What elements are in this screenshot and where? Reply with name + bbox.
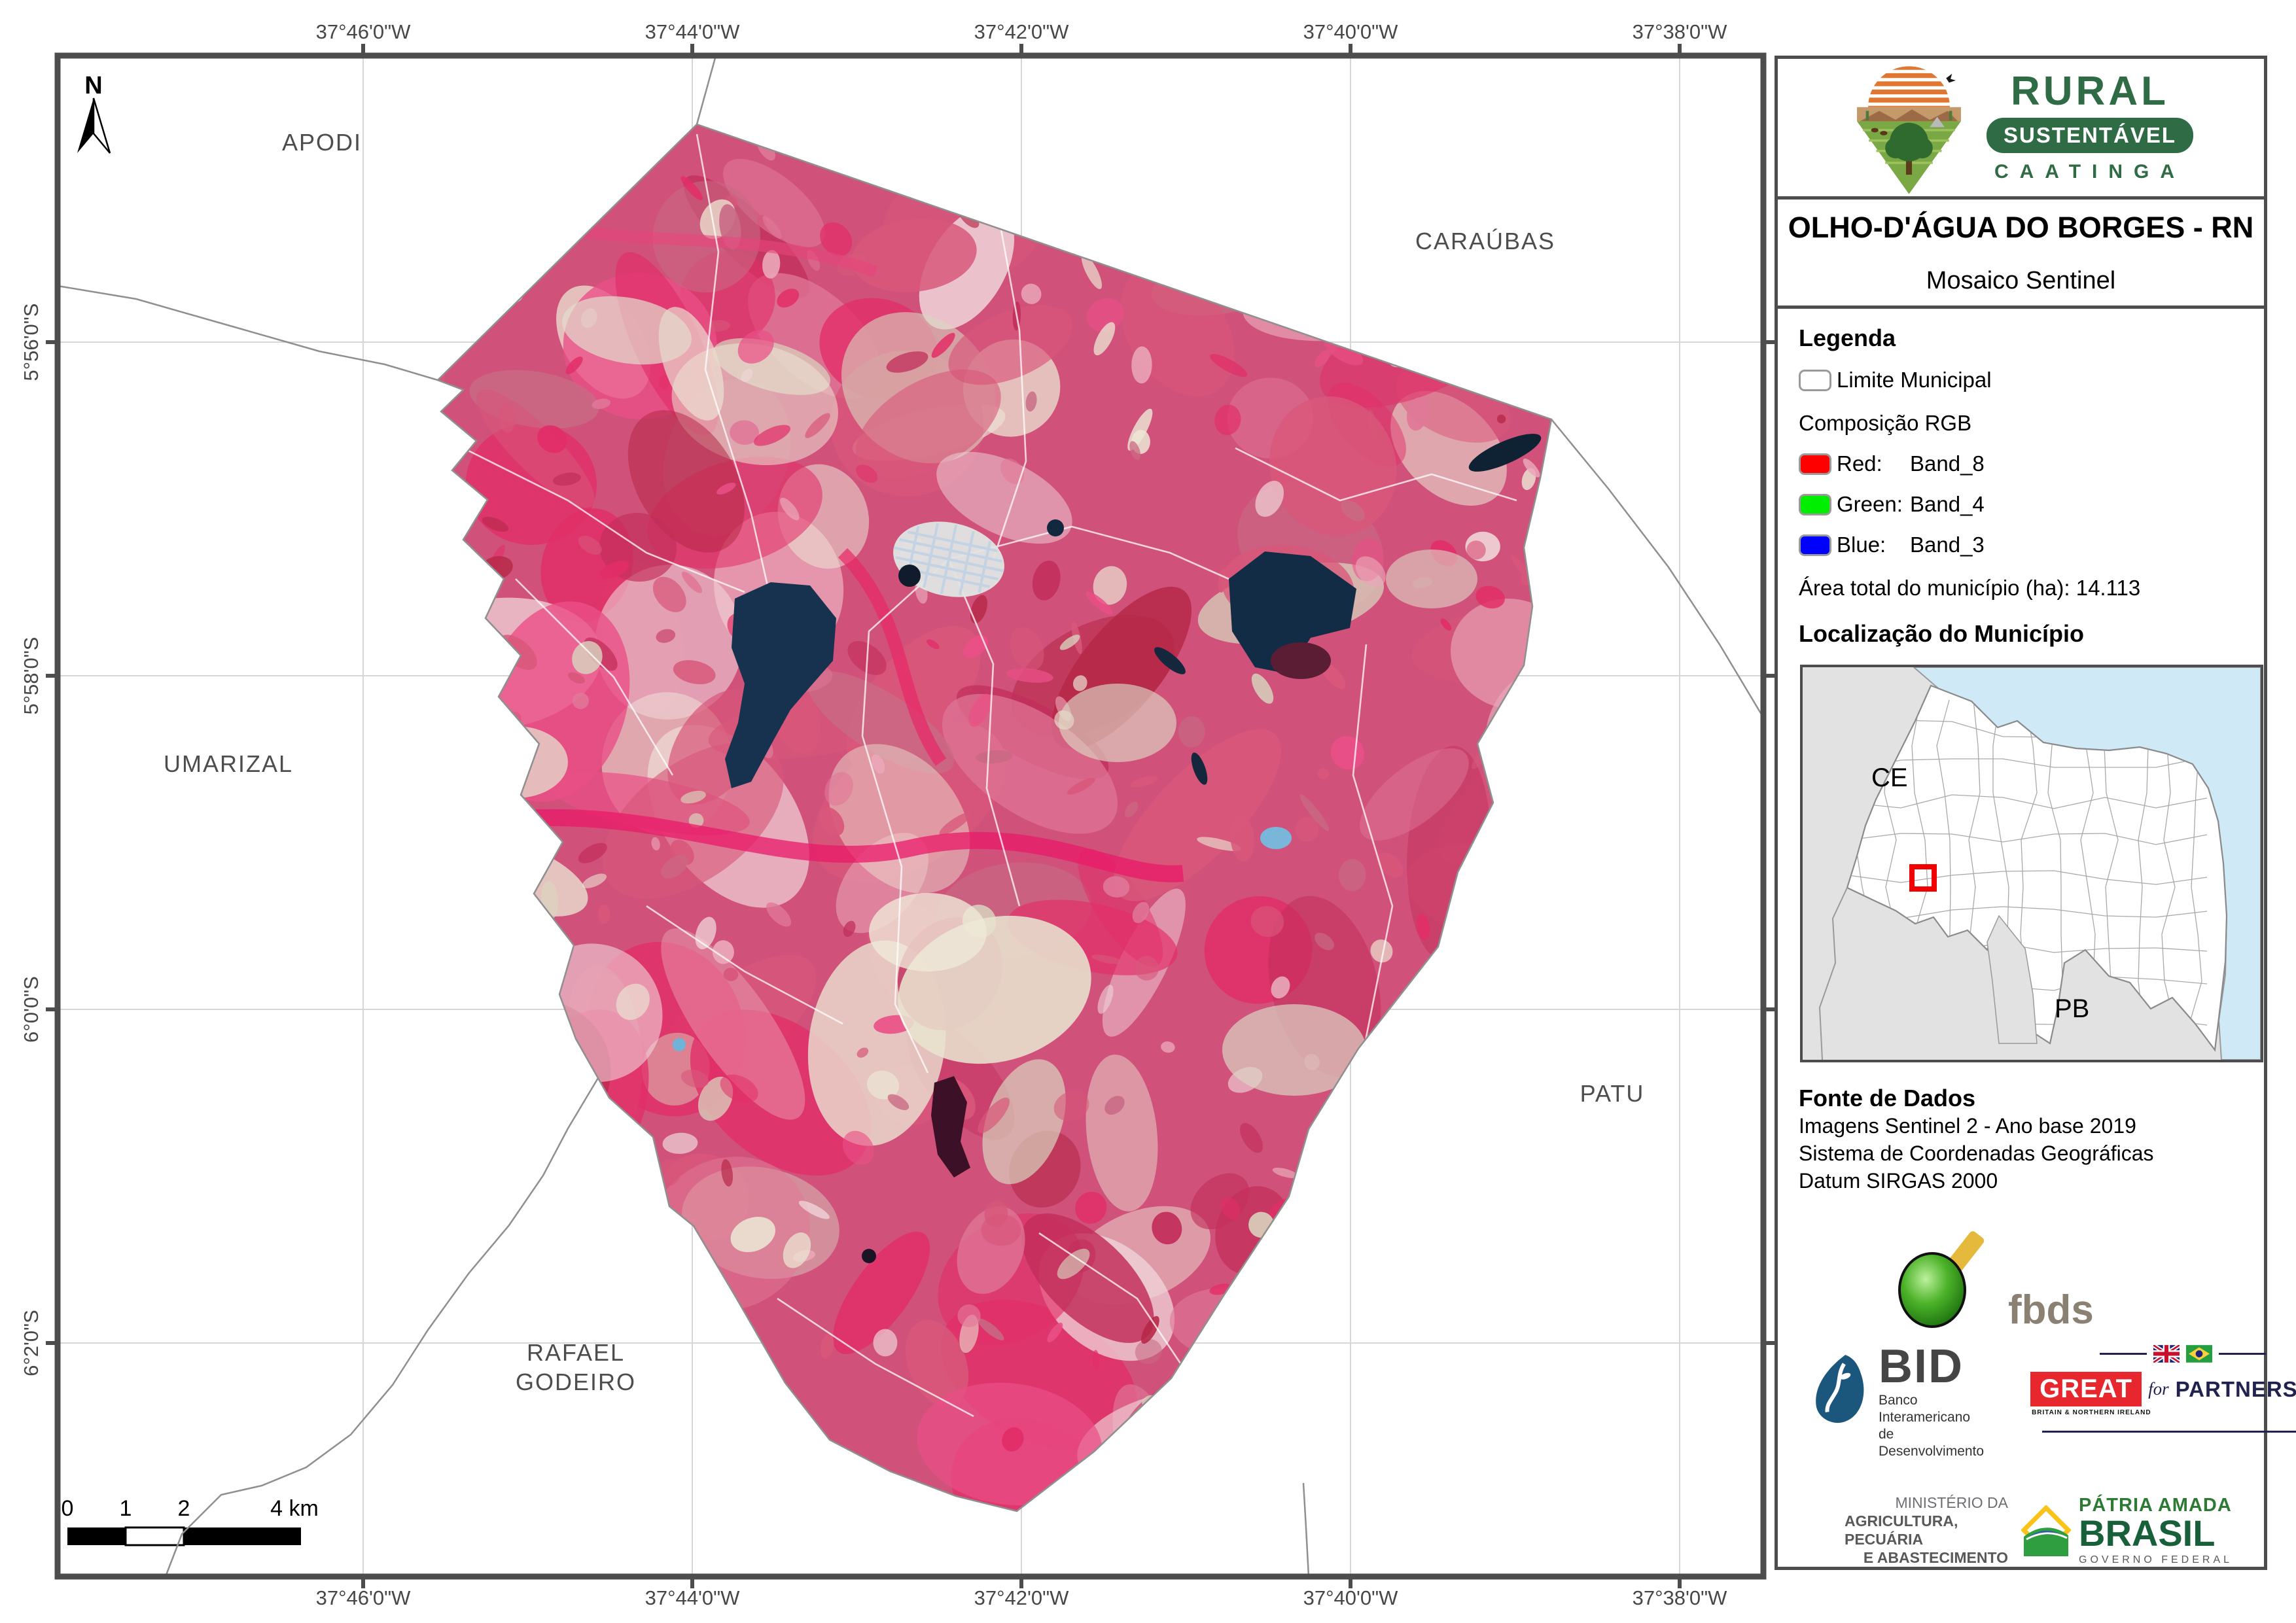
sat-blob	[1515, 364, 1542, 394]
scale-4km: 4 km	[270, 1496, 319, 1521]
fonte-heading: Fonte de Dados	[1799, 1085, 2264, 1112]
sat-blob	[412, 748, 518, 916]
sat-blob	[1468, 938, 1499, 967]
sat-blob	[486, 979, 508, 993]
flag-dash-right	[2219, 1353, 2266, 1355]
sat-blob	[524, 967, 537, 979]
sat-blob	[1462, 283, 1494, 305]
sat-blob	[486, 1002, 519, 1036]
sat-blob	[1434, 1367, 1474, 1392]
scale-2: 2	[178, 1496, 190, 1521]
great-subtitle: BRITAIN & NORTHERN IRELAND	[2032, 1409, 2151, 1416]
sat-blob	[1423, 1155, 1442, 1188]
sat-blob	[1502, 1384, 1527, 1419]
sat-blob	[1117, 185, 1154, 224]
legend-item-limite: Limite Municipal	[1799, 368, 2264, 393]
sat-blob	[1226, 1468, 1256, 1514]
bid-subtitle-1: Banco Interamericano	[1879, 1392, 1994, 1426]
sat-blob	[1396, 1070, 1421, 1093]
sat-blob	[1335, 1463, 1343, 1472]
sat-blob	[981, 1214, 1021, 1246]
sat-blob	[393, 918, 510, 1050]
sat-blob	[495, 1164, 507, 1197]
sat-blob	[1356, 1422, 1443, 1492]
lon-label-top: 37°46'0"W	[291, 20, 435, 44]
lon-label-top: 37°40'0"W	[1279, 20, 1422, 44]
pb-label: PB	[2055, 994, 2089, 1023]
sat-blob	[1522, 864, 1549, 891]
sat-blob	[1150, 168, 1195, 191]
sat-blob	[1311, 1193, 1335, 1223]
sat-blob	[1309, 1456, 1332, 1499]
fbds-wordmark: fbds	[2008, 1293, 2094, 1328]
uk-flag-icon	[2153, 1345, 2180, 1363]
page-title: OLHO-D'ÁGUA DO BORGES - RN	[1788, 211, 2254, 245]
lon-label-bottom: 37°42'0"W	[949, 1586, 1093, 1611]
sat-blob	[1108, 1467, 1156, 1501]
sat-blob	[1522, 988, 1562, 1024]
sat-blob	[419, 1219, 573, 1358]
sat-blob	[1402, 1045, 1520, 1129]
bid-wordmark: BID	[1879, 1345, 1994, 1388]
sat-blob	[463, 639, 491, 680]
brand-caatinga: CAATINGA	[1994, 161, 2185, 183]
brazil-flag-icon	[2186, 1345, 2212, 1363]
ministry-line-2: AGRICULTURA, PECUÁRIA	[1845, 1512, 2008, 1548]
sat-blob	[1199, 1321, 1409, 1443]
sat-blob	[1301, 264, 1330, 288]
sat-blob	[1512, 1275, 1540, 1310]
north-label: N	[84, 72, 102, 99]
sat-blob	[1199, 1499, 1237, 1532]
red-value: Band_8	[1910, 451, 1985, 476]
red-label: Red:	[1837, 451, 1910, 476]
lat-label-left: 5°58'0"S	[19, 604, 44, 748]
sat-blob	[1080, 1481, 1105, 1505]
sat-blob	[873, 1329, 897, 1357]
sat-blob	[567, 1210, 597, 1238]
sat-blob	[521, 1117, 564, 1166]
sat-blob	[1458, 1208, 1496, 1252]
sat-blob	[1455, 1042, 1485, 1076]
green-value: Band_4	[1910, 492, 1985, 517]
sat-blob	[419, 962, 468, 1011]
legend-item-blue: Blue: Band_3	[1799, 532, 2264, 557]
label-rafael-godeiro-2: GODEIRO	[516, 1369, 636, 1395]
fbds-logo-icon	[1898, 1217, 2003, 1328]
sat-blob	[1194, 10, 1445, 254]
sat-blob	[1004, 69, 1103, 202]
sat-blob	[1433, 1184, 1457, 1213]
sat-blob	[1320, 1161, 1357, 1196]
sat-blob	[1345, 1431, 1364, 1455]
sidebar-panel: RURAL SUSTENTÁVEL CAATINGA OLHO-D'ÁGUA D…	[1775, 56, 2267, 1570]
sat-blob	[503, 1147, 519, 1165]
government-logos-row: MINISTÉRIO DA AGRICULTURA, PECUÁRIA E AB…	[1845, 1494, 2264, 1567]
lat-label-left: 6°2'0"S	[19, 1271, 44, 1415]
sat-blob	[1120, 131, 1262, 295]
lat-label-left: 6°0'0"S	[19, 937, 44, 1081]
sat-blob	[493, 118, 519, 139]
sat-blob	[1269, 205, 1322, 259]
sat-blob	[1459, 1518, 1501, 1529]
sat-blob	[645, 102, 681, 140]
sat-blob	[1230, 1299, 1272, 1336]
legend-item-green: Green: Band_4	[1799, 492, 2264, 517]
sat-blob	[439, 839, 465, 850]
area-total: Área total do município (ha): 14.113	[1799, 576, 2264, 601]
sat-blob	[1312, 1181, 1486, 1339]
sat-blob	[514, 907, 537, 928]
green-swatch	[1799, 494, 1831, 515]
sat-blob	[1349, 213, 1381, 258]
sat-blob	[599, 1282, 611, 1304]
sat-blob	[1382, 85, 1608, 300]
lon-label-top: 37°42'0"W	[949, 20, 1093, 44]
sat-blob	[1462, 1130, 1485, 1161]
caatinga-logo-icon	[1848, 59, 1969, 196]
sat-blob	[1100, 156, 1140, 198]
north-arrow: N	[77, 72, 110, 153]
sat-blob	[1485, 1427, 1513, 1456]
ministry-text: MINISTÉRIO DA AGRICULTURA, PECUÁRIA E AB…	[1845, 1494, 2008, 1567]
locator-inset: CE PB	[1800, 665, 2263, 1062]
label-umarizal: UMARIZAL	[164, 750, 293, 777]
lon-label-bottom: 37°40'0"W	[1279, 1586, 1422, 1611]
sat-blob	[1111, 1425, 1178, 1620]
sat-blob	[1235, 188, 1277, 221]
sat-blob	[427, 247, 445, 262]
red-swatch	[1799, 453, 1831, 475]
sat-blob	[1295, 817, 1318, 842]
page-subtitle: Mosaico Sentinel	[1926, 267, 2115, 295]
sat-blob	[717, 1404, 741, 1432]
localizacao-heading: Localização do Município	[1799, 620, 2264, 648]
sat-blob	[1247, 1457, 1286, 1503]
flag-dash-left	[2100, 1353, 2147, 1355]
sat-blob	[1439, 1210, 1502, 1349]
great-partnership: PARTNERSHIP	[2176, 1377, 2296, 1402]
sat-blob	[1359, 1158, 1372, 1166]
sat-blob	[669, 1363, 700, 1391]
brazil-gov-flag-icon	[2021, 1505, 2071, 1556]
sat-blob	[1398, 1188, 1411, 1209]
lon-label-bottom: 37°46'0"W	[291, 1586, 435, 1611]
legend-heading: Legenda	[1799, 324, 2264, 352]
ce-label: CE	[1871, 763, 1908, 792]
blue-value: Band_3	[1910, 532, 1985, 557]
sat-blob	[997, 109, 1020, 135]
patria-amada-text: PÁTRIA AMADA BRASIL GOVERNO FEDERAL	[2079, 1495, 2233, 1566]
sat-blob	[544, 1158, 571, 1179]
sat-blob	[1222, 1257, 1394, 1442]
sat-blob	[1333, 253, 1371, 297]
sat-blob	[1327, 296, 1364, 317]
sat-blob	[416, 761, 436, 805]
bid-logo: BID Banco Interamericano de Desenvolvime…	[1810, 1345, 1994, 1460]
bid-logo-icon	[1810, 1345, 1869, 1437]
sat-blob	[1193, 1401, 1223, 1422]
sat-blob	[1510, 1465, 1543, 1488]
blue-swatch	[1799, 534, 1831, 556]
sat-blob	[516, 1422, 540, 1456]
sat-blob	[1133, 1427, 1159, 1459]
lon-label-bottom: 37°38'0"W	[1608, 1586, 1752, 1611]
sat-blob	[400, 656, 479, 820]
great-rule	[2042, 1431, 2296, 1433]
sat-blob	[506, 80, 568, 184]
sat-blob	[501, 832, 512, 880]
sat-blob	[1473, 1357, 1618, 1526]
great-for: for	[2148, 1379, 2169, 1399]
scale-bar: 0 1 2 4 km	[62, 1496, 319, 1545]
sat-blob	[1112, 196, 1146, 228]
label-patu: PATU	[1580, 1080, 1645, 1107]
program-logo-text: RURAL SUSTENTÁVEL CAATINGA	[1987, 72, 2193, 183]
locator-inset-map: CE PB	[1803, 667, 2261, 1060]
map-layout-page: 0 1 2 4 km	[0, 0, 2296, 1623]
label-caraubas: CARAÚBAS	[1415, 228, 1555, 254]
sat-blob	[574, 1137, 599, 1160]
sat-blob	[550, 1152, 587, 1196]
main-map: 0 1 2 4 km	[58, 56, 1763, 1577]
sat-blob	[1301, 1206, 1312, 1231]
sat-blob	[1339, 1221, 1365, 1257]
scale-0: 0	[62, 1496, 74, 1521]
program-logo-box: RURAL SUSTENTÁVEL CAATINGA	[1778, 59, 2264, 196]
lon-label-bottom: 37°44'0"W	[620, 1586, 764, 1611]
sat-blob	[586, 1108, 600, 1154]
sat-blob	[1384, 103, 1418, 139]
label-apodi: APODI	[282, 129, 362, 156]
patria-line-2: BRASIL	[2079, 1516, 2233, 1550]
sat-blob	[1549, 1427, 1572, 1467]
sat-blob	[569, 1225, 590, 1260]
partner-logos-row: BID Banco Interamericano de Desenvolvime…	[1810, 1345, 2264, 1460]
limite-label: Limite Municipal	[1837, 368, 1992, 393]
great-logo: GREAT for PARTNERSHIP BRITAIN & NORTHERN…	[2030, 1345, 2296, 1433]
ministry-line-3: E ABASTECIMENTO	[1863, 1548, 2008, 1567]
brand-rural: RURAL	[2011, 72, 2169, 111]
sat-blob	[1437, 939, 1467, 975]
sat-blob	[410, 960, 571, 1166]
legend-item-red: Red: Band_8	[1799, 451, 2264, 476]
sat-blob	[1090, 1498, 1104, 1529]
blue-label: Blue:	[1837, 532, 1910, 557]
sat-blob	[421, 572, 444, 612]
lat-label-left: 5°56'0"S	[19, 270, 44, 414]
sat-blob	[415, 1300, 441, 1323]
great-wordmark-row: GREAT for PARTNERSHIP	[2030, 1372, 2296, 1406]
title-box: OLHO-D'ÁGUA DO BORGES - RN Mosaico Senti…	[1778, 196, 2264, 305]
scale-1: 1	[120, 1496, 132, 1521]
sat-blob	[1282, 249, 1300, 268]
sat-blob	[510, 1502, 535, 1520]
sat-blob	[995, 122, 1031, 152]
sat-blob	[1444, 1283, 1480, 1323]
ministry-line-1: MINISTÉRIO DA	[1895, 1494, 2008, 1512]
sat-blob	[1398, 1422, 1423, 1451]
sat-blob	[465, 1137, 495, 1170]
fonte-line-3: Datum SIRGAS 2000	[1799, 1167, 2264, 1195]
sat-blob	[497, 142, 587, 228]
limite-swatch	[1799, 370, 1831, 391]
brand-sustentavel: SUSTENTÁVEL	[1987, 118, 2193, 153]
label-rafael-godeiro-1: RAFAEL	[527, 1339, 625, 1366]
sat-blob	[442, 121, 584, 274]
sat-blob	[1032, 135, 1051, 169]
sat-blob	[1402, 182, 1432, 207]
sat-blob	[1449, 1179, 1464, 1191]
sat-blob	[474, 722, 493, 755]
sat-blob	[1333, 1146, 1434, 1262]
sat-blob	[1265, 1421, 1296, 1456]
sat-blob	[597, 1422, 743, 1550]
composicao-heading: Composição RGB	[1799, 411, 2264, 436]
sat-blob	[1449, 1198, 1472, 1212]
sat-blob	[420, 701, 434, 729]
sat-blob	[1540, 145, 1559, 166]
sat-blob	[463, 971, 495, 980]
fonte-line-2: Sistema de Coordenadas Geográficas	[1799, 1140, 2264, 1167]
bid-subtitle-2: de Desenvolvimento	[1879, 1426, 1994, 1460]
sat-blob	[427, 920, 440, 939]
fonte-line-1: Imagens Sentinel 2 - Ano base 2019	[1799, 1112, 2264, 1140]
sat-blob	[1496, 130, 1532, 166]
great-flags	[2100, 1345, 2266, 1363]
fbds-logo: fbds	[1898, 1217, 2264, 1328]
sat-blob	[351, 1397, 544, 1580]
great-wordmark: GREAT	[2030, 1372, 2142, 1406]
sat-blob	[576, 1402, 749, 1571]
sat-blob	[1528, 949, 1543, 989]
sat-blob	[1498, 1455, 1541, 1503]
lon-label-top: 37°38'0"W	[1608, 20, 1752, 44]
sat-blob	[1512, 197, 1571, 358]
green-label: Green:	[1837, 492, 1910, 517]
sat-blob	[1315, 1404, 1455, 1560]
lon-label-top: 37°44'0"W	[620, 20, 764, 44]
patria-line-3: GOVERNO FEDERAL	[2079, 1554, 2233, 1566]
sat-blob	[1083, 1498, 1122, 1520]
legend-box: Legenda Limite Municipal Composição RGB …	[1778, 305, 2264, 1567]
